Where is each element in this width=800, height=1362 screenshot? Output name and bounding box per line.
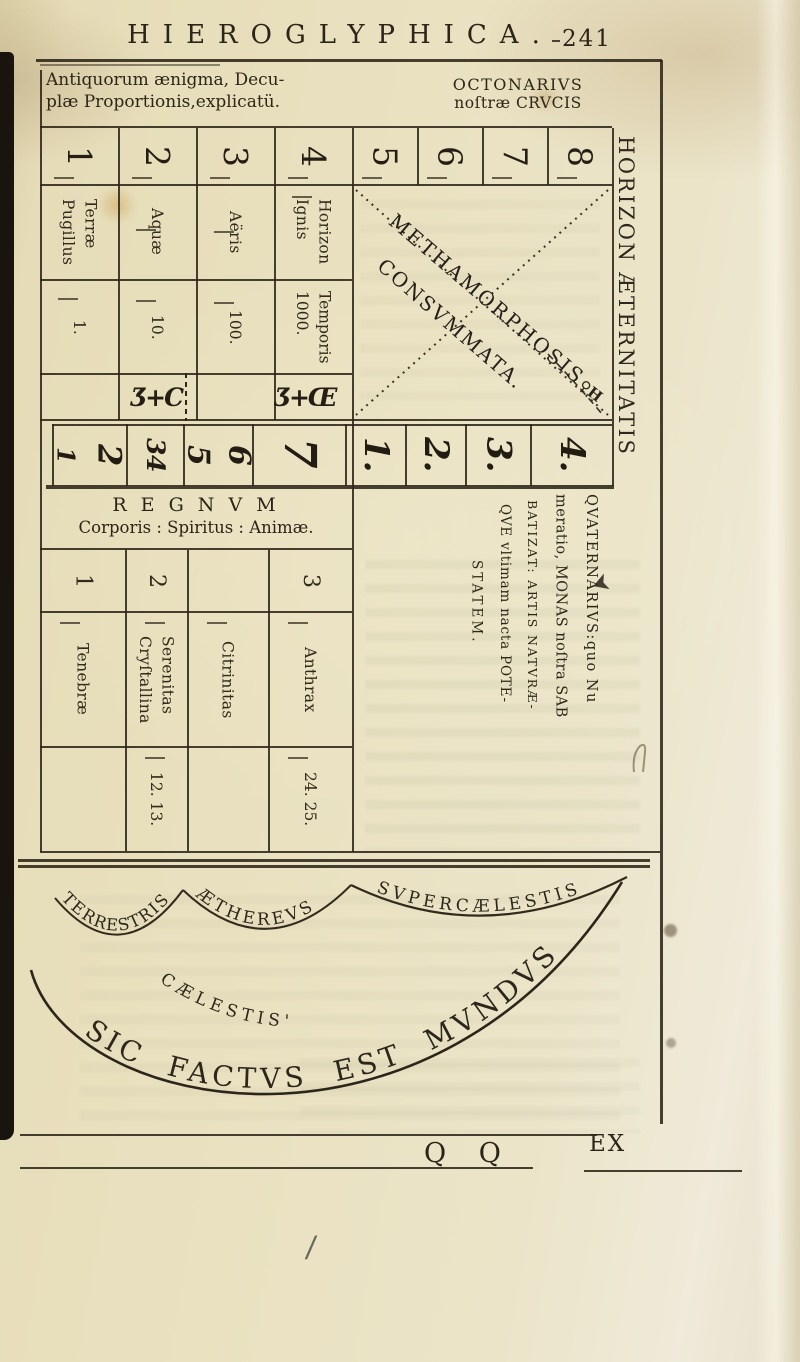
octonarius-caption: OCTONARIVS noſtræ CRVCIS [438,75,598,112]
cell-separator-mark [60,622,80,624]
arc-text-terrestris: TERRESTRIS [58,888,174,935]
table1-value-cell: 10. [118,281,196,373]
cell-separator-mark [492,177,512,179]
arc-text-caelestis: CÆLESTIS' [157,969,295,1032]
note-line: BATIZAT: ARTIS NATVRÆ- [519,494,545,726]
footer-rule [20,1134,597,1136]
note-line: QVE vltimam nacta POTE- [491,494,519,726]
glyph-cell: 4. [532,426,612,484]
value-line: 1000. [291,291,313,364]
symbol-cell: Ʒ+Œ [262,375,348,419]
label-line: Anthrax [299,647,321,713]
octonarius-numeral-cell: 5 [352,128,417,184]
numeral: 1 [55,146,103,167]
cell-separator-mark [292,196,312,198]
rotated-numeral: 1 [52,447,81,464]
table1-label-cell: Aëris [196,186,274,278]
rotated-numeral: 3 [141,438,170,455]
table-rule [40,746,352,748]
cell-separator-mark [145,622,165,624]
table1-label-cell: Aquæ [118,186,196,278]
numeral: 2 [133,146,181,167]
table1-caption: Antiquorum ænigma, Decu- plæ Proportioni… [46,69,356,113]
cell-separator-mark [557,177,577,179]
label-line: Horizon [313,199,335,265]
margin-vertical-title: HORIZON ÆTERNITATIS [614,136,638,488]
value-line: 1. [68,320,90,335]
glyph-cell: 3 4 [128,426,183,484]
label-line: Tenebræ [71,643,93,715]
table1-value-cell: Temporis1000. [274,281,352,373]
slash-ink-mark: / [304,1230,318,1266]
table1-value-cell: 1. [40,281,118,373]
label-line: Aquæ [146,208,168,255]
regnum-label-cell: Anthrax [268,613,352,746]
label-line: Cryſtallina [134,636,156,724]
glyph-cell: 3. [467,426,530,484]
rotated-numeral: 4. [552,437,592,473]
label-line: Terræ [79,199,101,265]
label-line: Citrinitas [216,641,238,719]
caption-line: OCTONARIVS [438,75,598,94]
symbol-cell: Ʒ+C [100,375,182,419]
gutter-shadow [0,52,14,1140]
numeral: 5 [361,146,409,167]
table1-numeral-cell: 1 [40,128,118,184]
numeral: 4 [289,146,337,167]
label-line: Pugillus [57,199,79,265]
value-line: 100. [224,310,246,345]
page-header: HIEROGLYPHICA. 241 [0,0,800,60]
arc-text-sic-factus: SIC FACTVS EST MVNDVS [79,936,565,1095]
rotated-numeral: 2. [416,437,456,473]
octonarius-numeral-cell: 8 [547,128,612,184]
rotated-numeral: 4 [141,455,170,472]
cell-separator-mark [214,231,234,233]
cell-separator-mark [207,622,227,624]
regnum-numeral-cell [187,551,268,611]
catchword: EX [589,1131,626,1157]
cell-separator-mark [54,177,74,179]
regnum-label-cell: Citrinitas [187,613,268,746]
head-rule [36,59,662,62]
cell-separator-mark [427,177,447,179]
rotated-numeral: 5 [181,445,216,466]
cell-separator-mark [288,177,308,179]
regnum-label-cell: Tenebræ [40,613,125,746]
cell-separator-mark [145,757,165,759]
value: 12. 13. [145,772,167,826]
table-rule [40,548,352,550]
arc-text-supercaelestis: SVPERCÆLESTIS [374,878,584,917]
ink-tick [552,40,560,42]
value-line: 10. [146,315,168,340]
regnum-numeral-cell: 1 [40,551,125,611]
note-line: QVATERNARIVS:quo Nu [576,494,606,726]
label-line: Ignis [291,199,313,265]
numeral: 2 [140,574,172,588]
table1-label-cell: TerræPugillus [40,186,118,278]
value: 24. 25. [299,772,321,826]
regnum-value-cell: 24. 25. [268,749,352,849]
table-rule [46,485,614,489]
page-number: 241 [562,26,612,52]
catchword-rule [584,1170,742,1172]
table-rule [40,419,612,421]
table1-value-cell: 100. [196,281,274,373]
cell-separator-mark [136,229,156,231]
book-page-scan: HIEROGLYPHICA. 241 Antiquorum ænigma, De… [0,0,800,1362]
numeral: 8 [556,146,604,167]
numeral: 1 [67,574,99,588]
regnum-numeral-cell: 3 [268,551,352,611]
rotated-numeral: 3. [479,437,519,473]
cell-separator-mark [132,177,152,179]
note-line: STATEM. [462,494,490,726]
cell-separator-mark [288,622,308,624]
page-title: HIEROGLYPHICA. [120,20,560,50]
glyph-cell: 7 [254,424,345,482]
arc-text-aethereus: ÆTHEREVS [191,883,319,930]
regnum-title: R E G N V M [40,494,352,516]
caption-line: plæ Proportionis,explicatü. [46,91,356,113]
rotated-numeral: 6 [222,445,257,466]
world-diagram: TERRESTRIS ÆTHEREVS SVPERCÆLESTIS CÆLEST… [15,853,800,1153]
glyph-cell: 1. [347,426,405,484]
rotated-numeral: 7 [274,438,325,469]
alchemical-symbol: Ʒ+Œ [275,383,336,412]
glyph-cell: 2. [407,426,465,484]
numeral: 7 [491,146,539,167]
cell-separator-mark [136,300,156,302]
octonarius-numeral-cell: 7 [482,128,547,184]
table1-numeral-cell: 2 [118,128,196,184]
cell-separator-mark [58,298,78,300]
octonarius-numeral-cell: 6 [417,128,482,184]
regnum-value-cell: 12. 13. [125,749,187,849]
signature-mark: Q Q [424,1138,513,1169]
quaternarius-note: QVATERNARIVS:quo Nu meratio, MONAS noſtr… [440,494,606,726]
table1-label-cell: HorizonIgnis [274,186,352,278]
cell-separator-mark [214,302,234,304]
alchemical-symbol: Ʒ+C [131,383,182,412]
rotated-numeral: 2 [91,444,129,466]
numeral: 3 [294,574,326,588]
cell-separator-mark [210,177,230,179]
glyph-cell: 1 2 [54,426,126,484]
numeral: 6 [426,146,474,167]
regnum-label-cell: SerenitasCryſtallina [125,613,187,746]
marginal-squiggle-mark [630,742,652,776]
caption-line: noſtræ CRVCIS [438,94,598,112]
rotated-numeral: 1. [356,437,396,473]
regnum-numeral-cell: 2 [125,551,187,611]
cell-separator-mark [362,177,382,179]
head-rule-echo [40,64,220,66]
label-line: Serenitas [156,636,178,724]
numeral: 3 [211,146,259,167]
page-edge [756,0,800,1362]
table1-numeral-cell: 3 [196,128,274,184]
glyph-cell: 5 6 [185,426,252,484]
table-rule-dashed [185,373,187,421]
table1-numeral-cell: 4 [274,128,352,184]
note-line: meratio, MONAS noſtra SAB [545,494,575,726]
caption-line: Antiquorum ænigma, Decu- [46,69,356,91]
regnum-subtitle: Corporis : Spiritus : Animæ. [40,518,352,537]
cell-separator-mark [288,757,308,759]
value-line: Temporis [313,291,335,364]
